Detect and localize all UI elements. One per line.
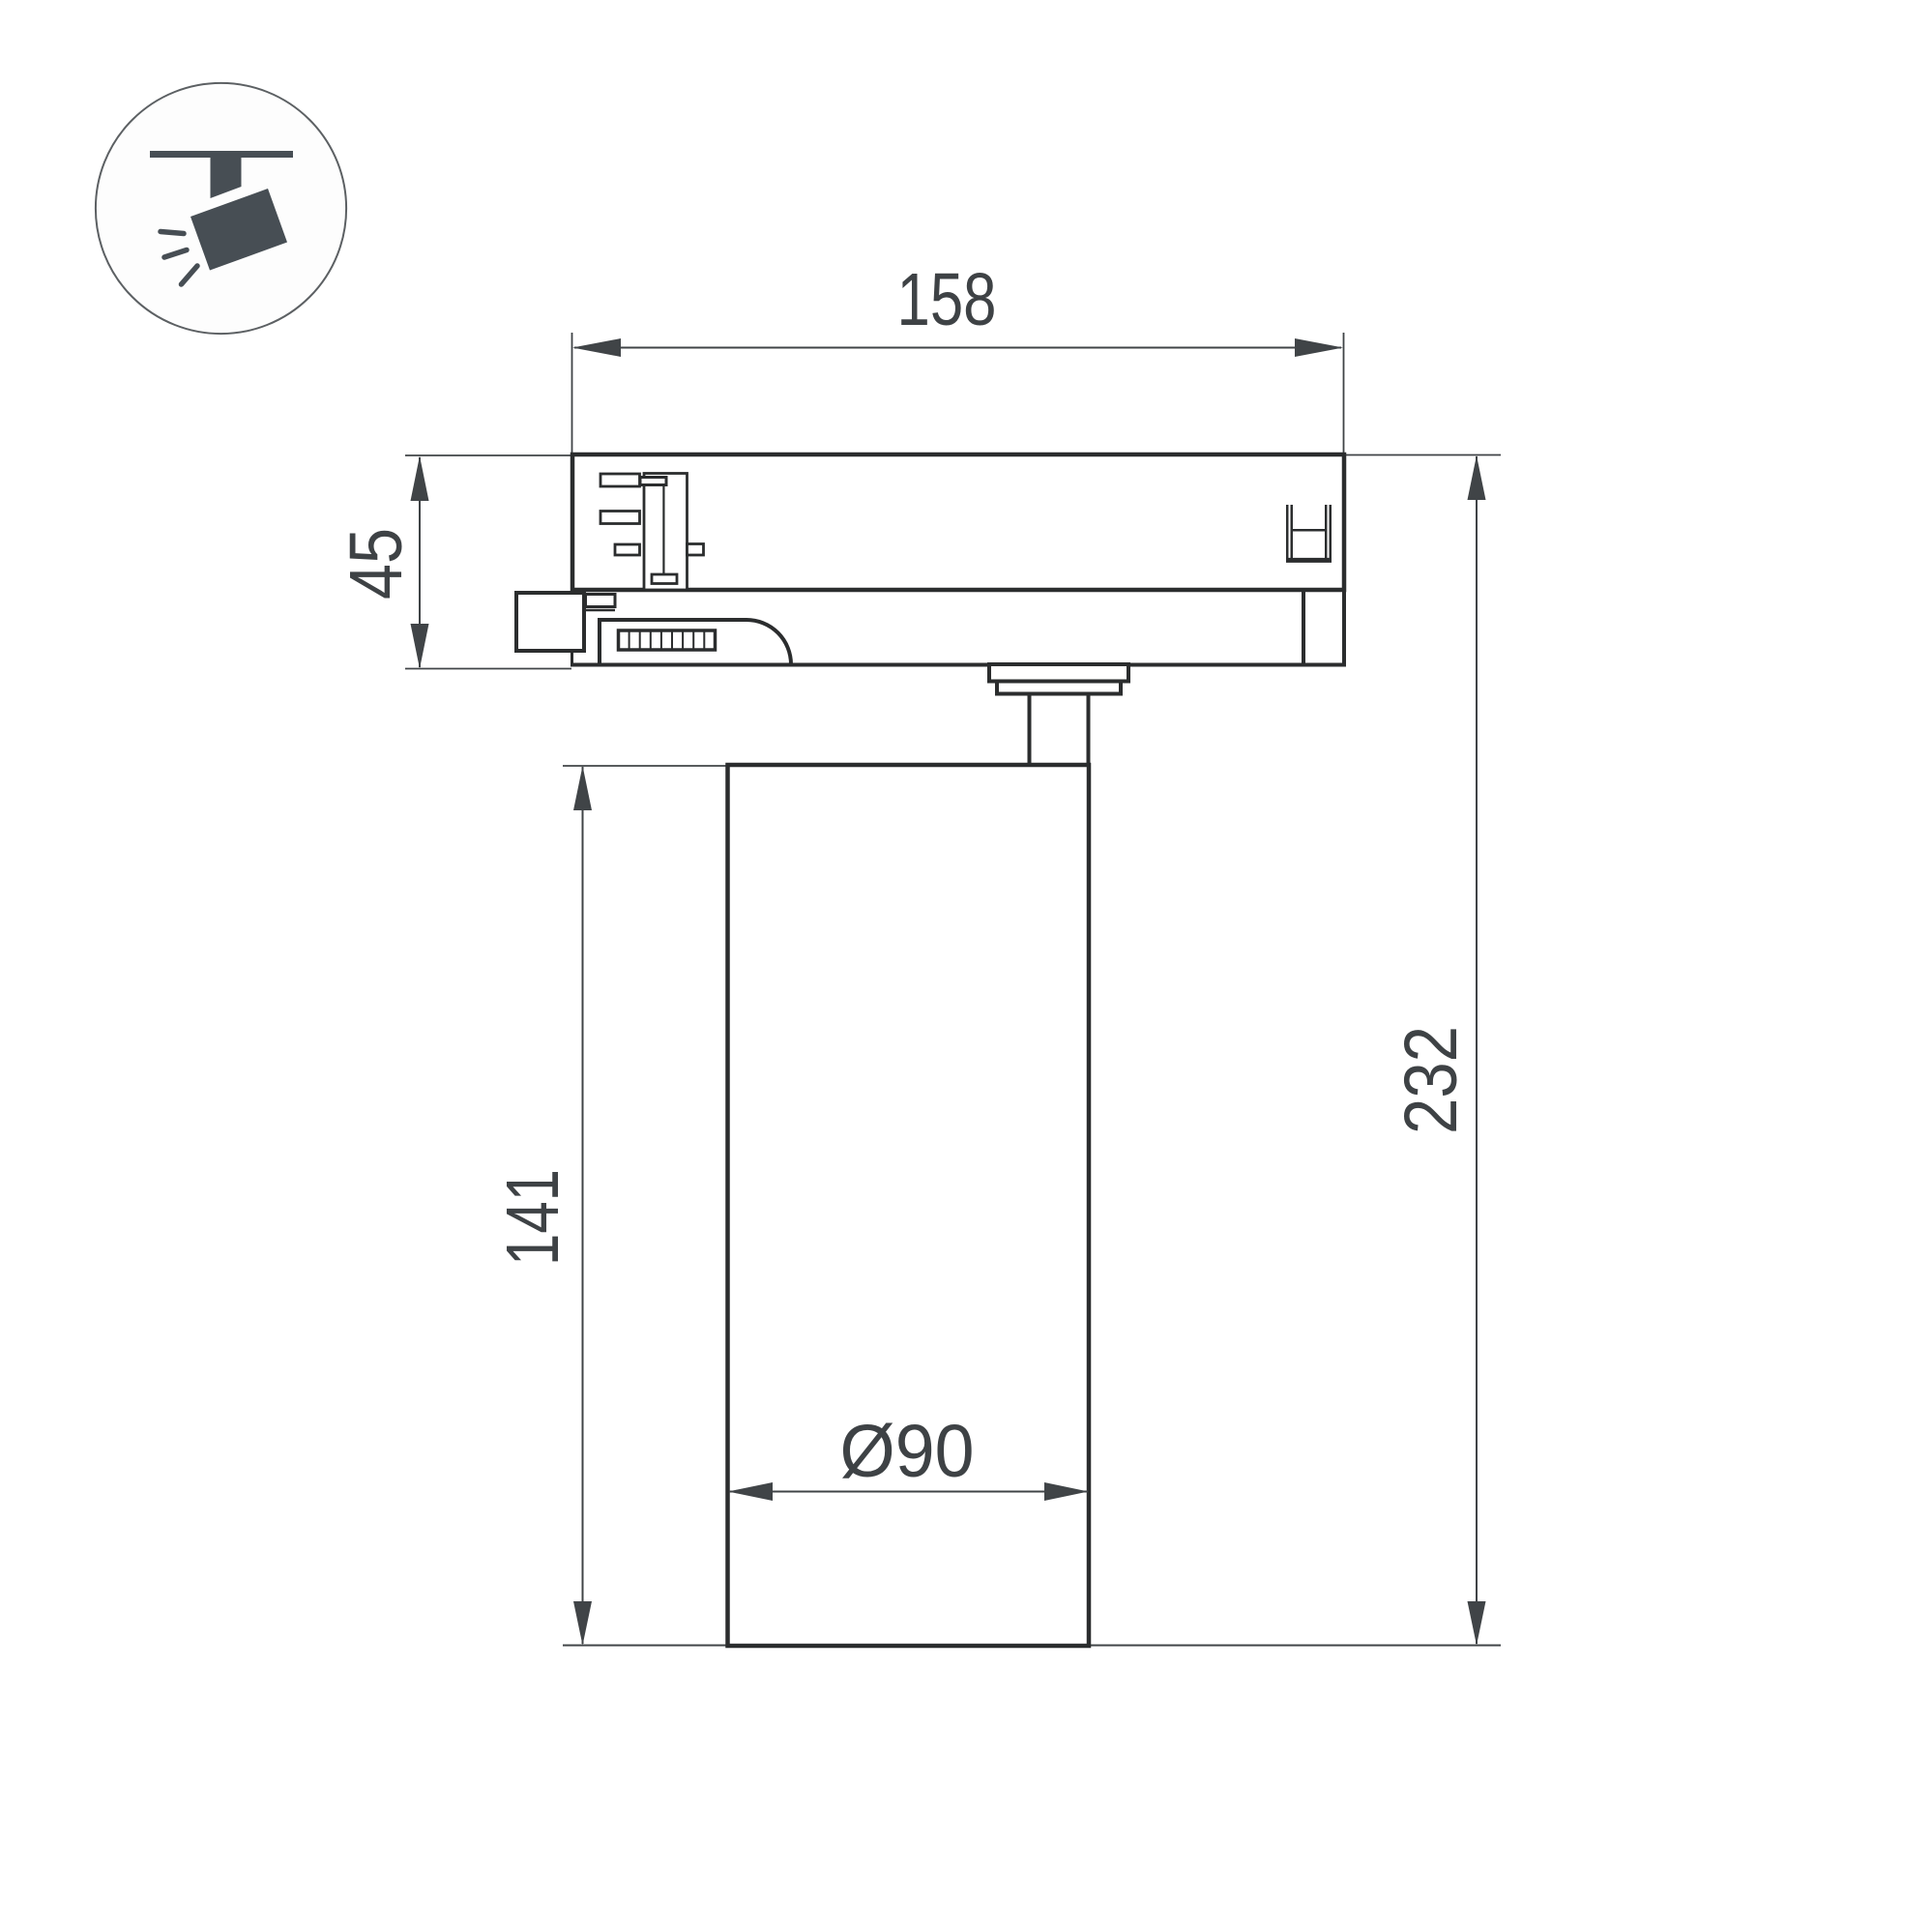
svg-text:232: 232 [1390, 1026, 1473, 1134]
svg-text:141: 141 [491, 1169, 574, 1266]
svg-text:45: 45 [335, 528, 418, 600]
svg-text:Ø90: Ø90 [840, 1410, 975, 1493]
svg-text:158: 158 [897, 258, 997, 341]
